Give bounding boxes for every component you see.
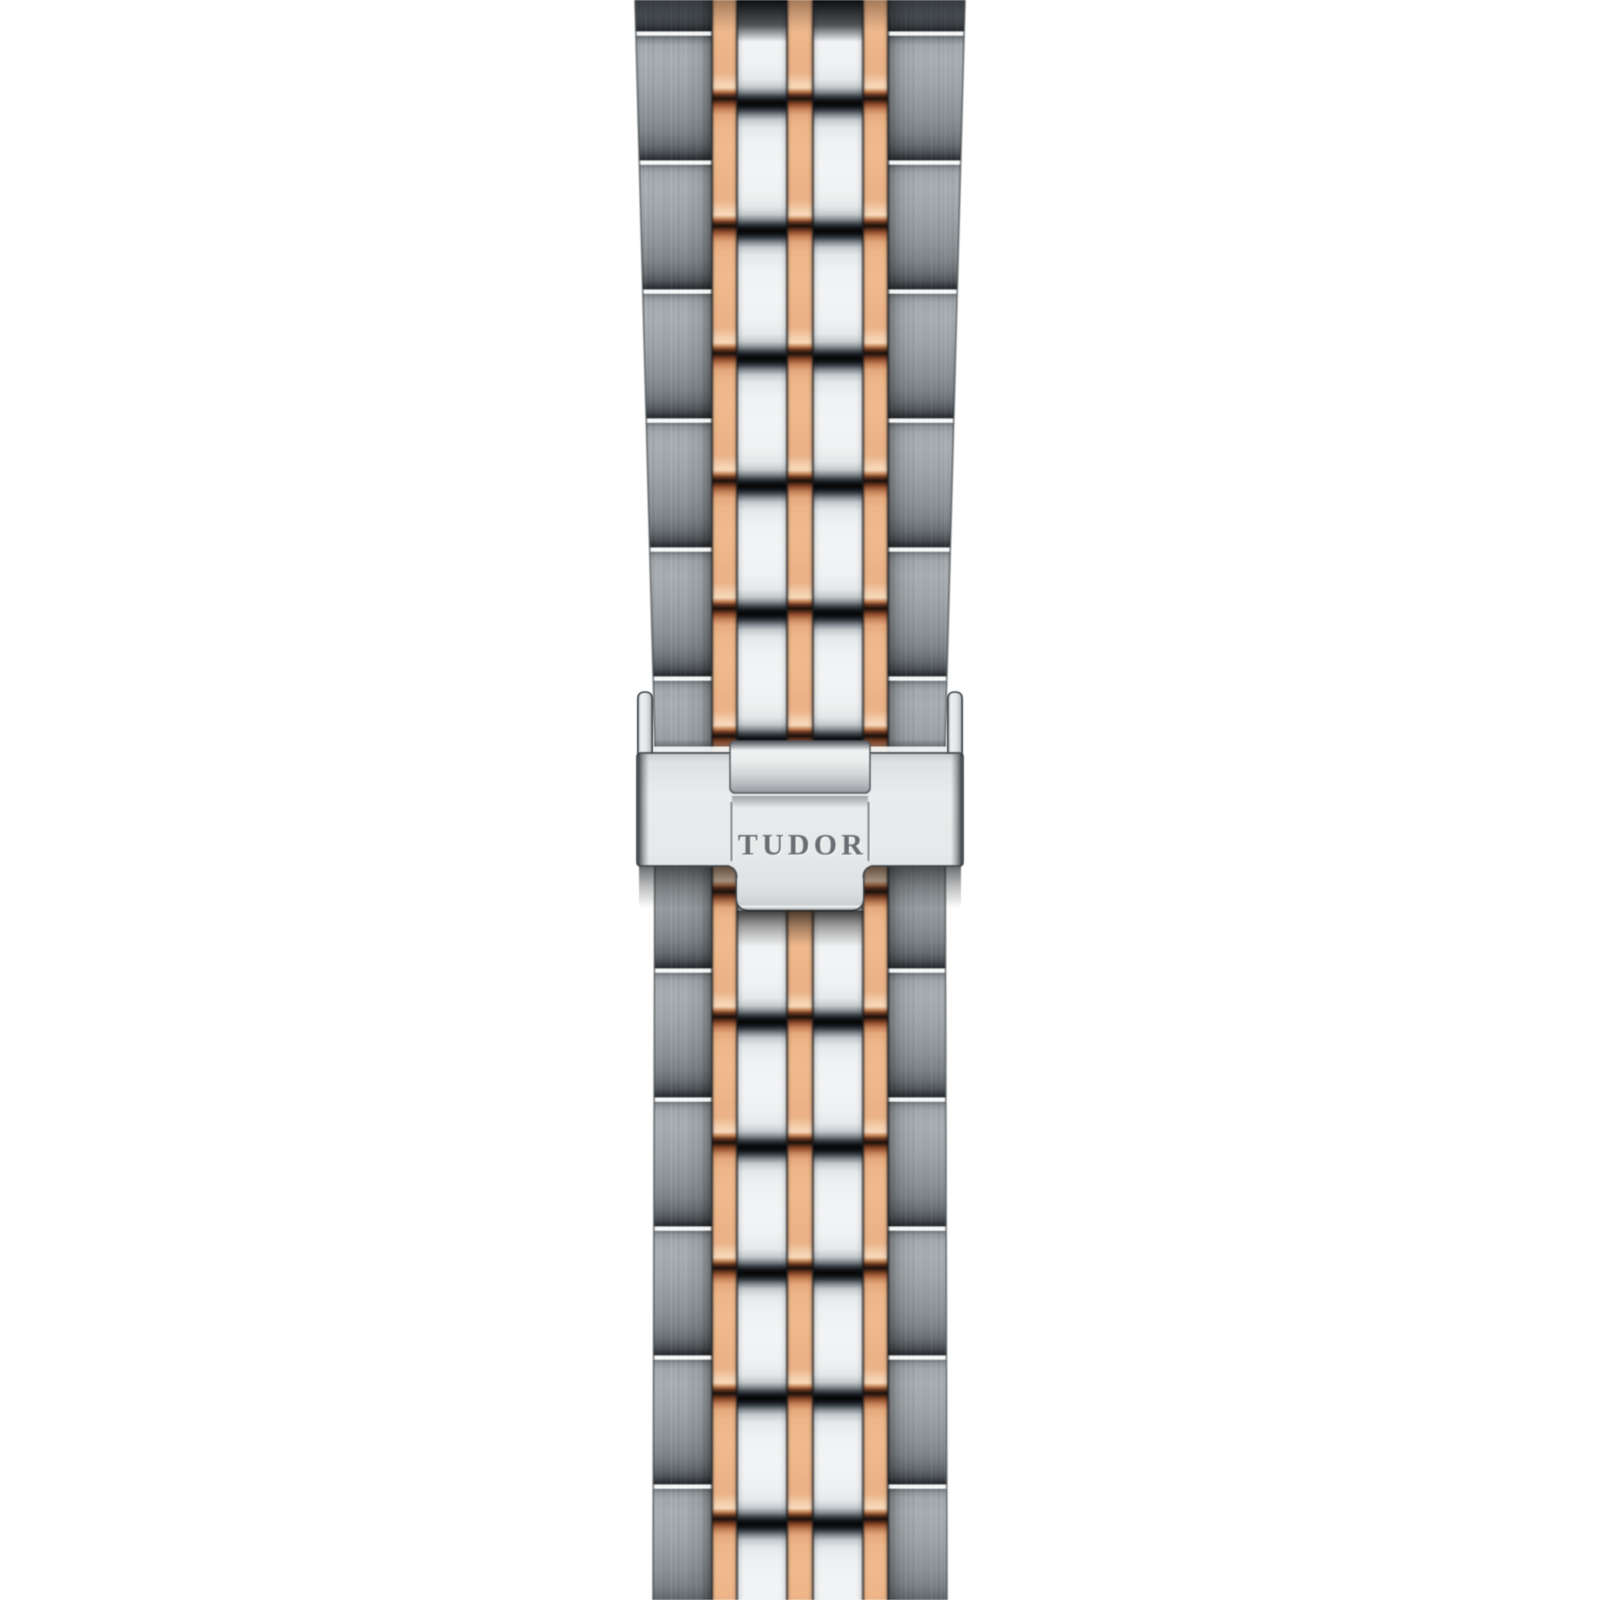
svg-text:TUDOR: TUDOR (738, 829, 867, 862)
